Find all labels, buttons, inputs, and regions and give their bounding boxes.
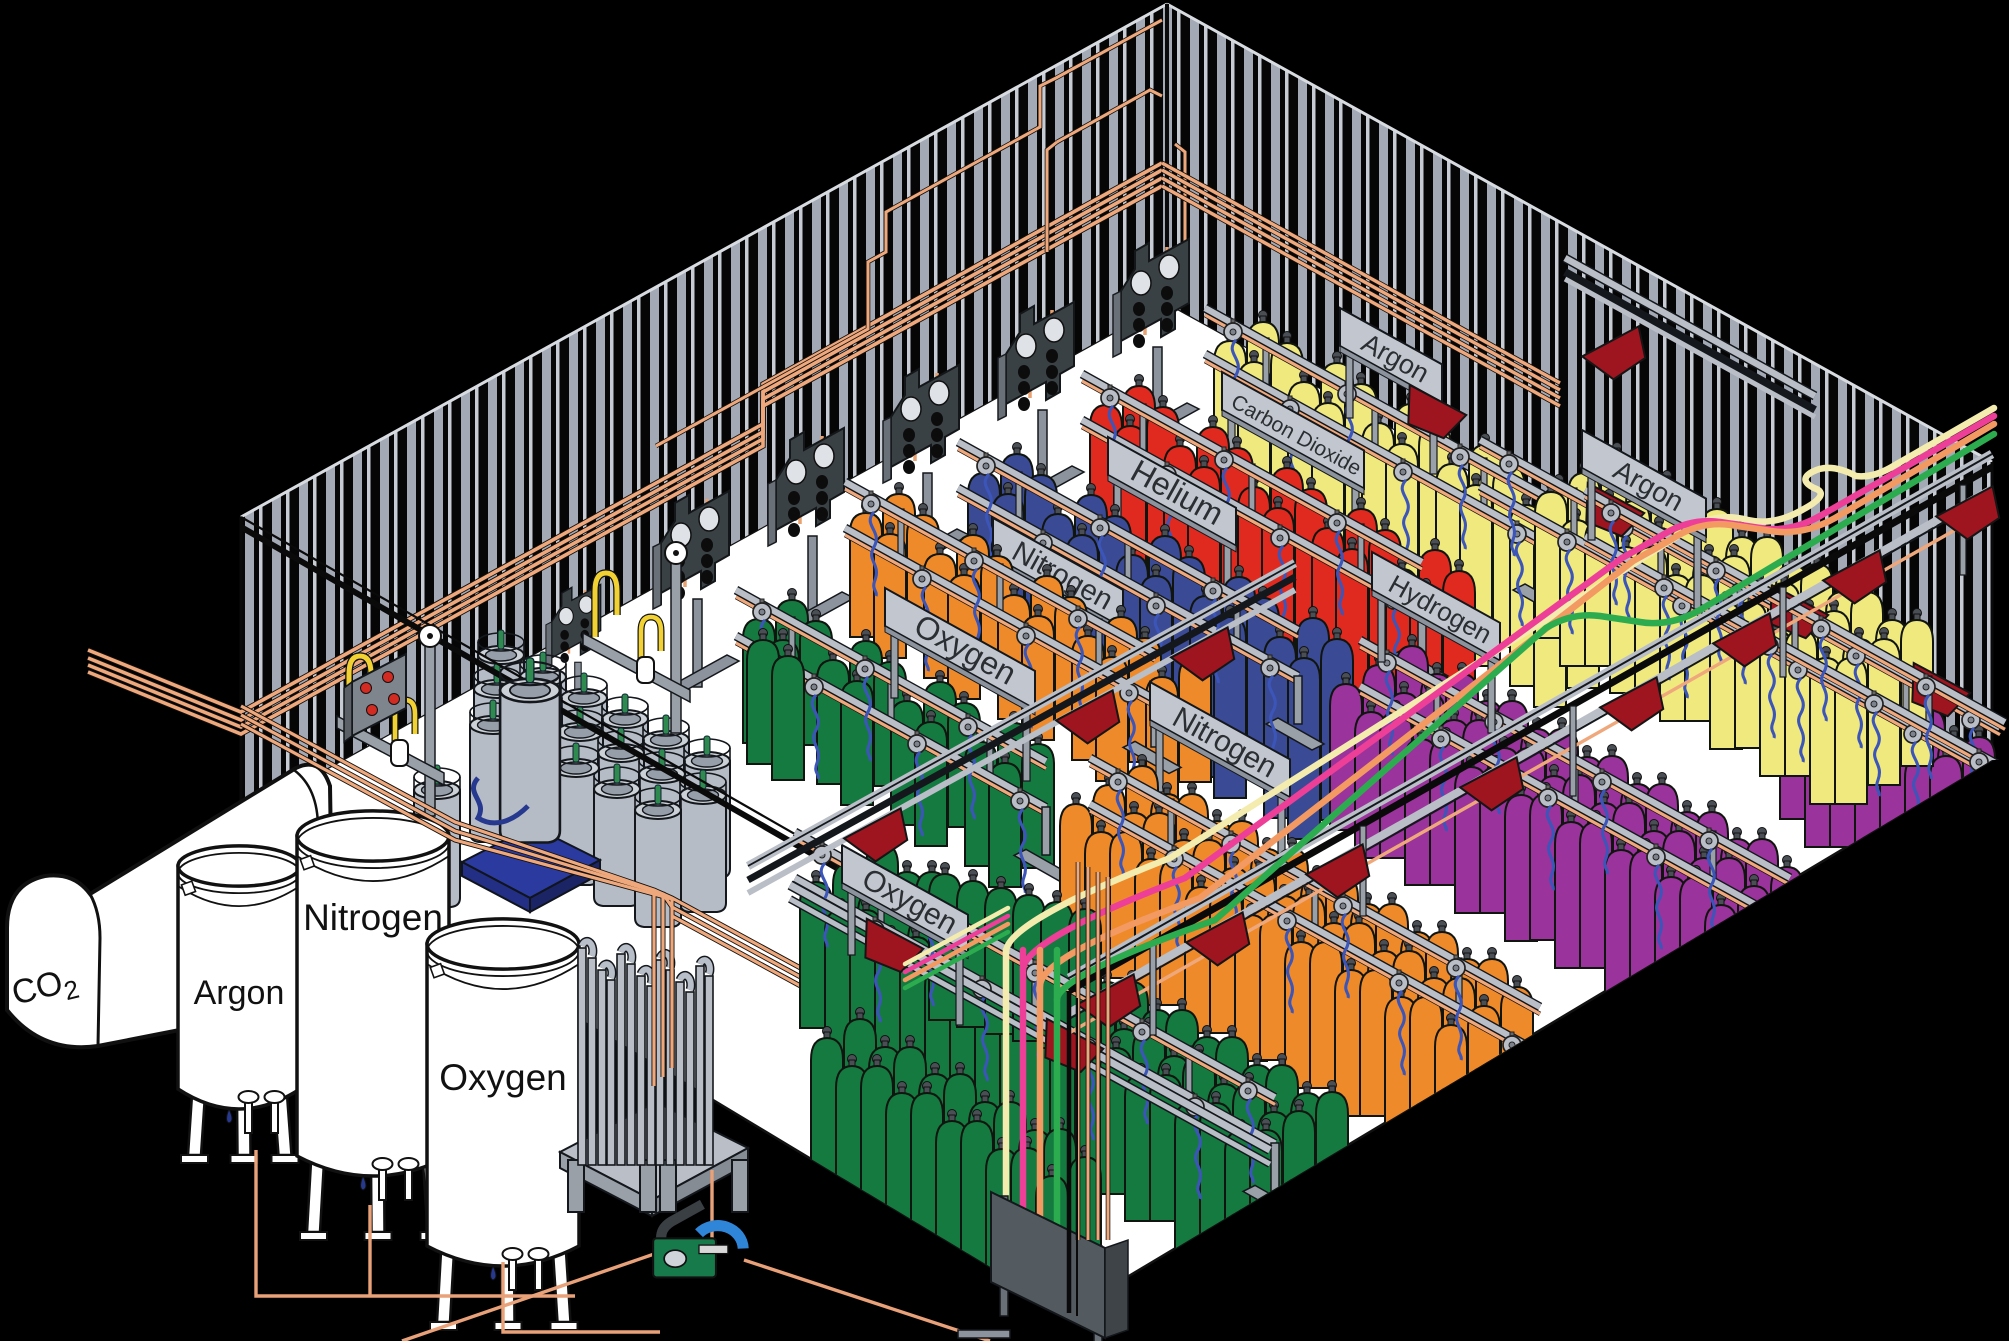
- svg-text:Argon: Argon: [194, 974, 285, 1012]
- svg-text:Nitrogen: Nitrogen: [303, 897, 443, 938]
- svg-text:Oxygen: Oxygen: [439, 1057, 567, 1098]
